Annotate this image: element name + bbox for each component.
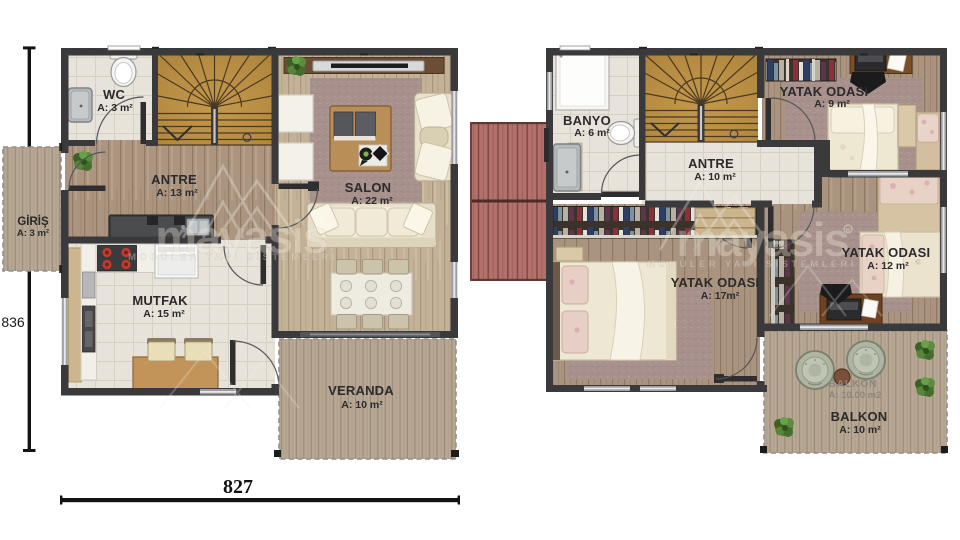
svg-text:A: 3 m²: A: 3 m²	[17, 228, 49, 239]
svg-text:A: 10 m²: A: 10 m²	[694, 171, 736, 183]
svg-text:R: R	[327, 218, 332, 224]
svg-text:ANTRE: ANTRE	[151, 172, 197, 187]
svg-text:A: 17m²: A: 17m²	[701, 290, 740, 302]
svg-text:YATAK ODASI: YATAK ODASI	[842, 245, 931, 260]
svg-text:MODÜLER YAPI SİSTEMLERİ: MODÜLER YAPI SİSTEMLERİ	[647, 259, 857, 270]
svg-text:BALKON: BALKON	[831, 409, 888, 424]
svg-text:SALON: SALON	[345, 180, 392, 195]
svg-text:ANTRE: ANTRE	[688, 156, 734, 171]
svg-text:827: 827	[223, 476, 253, 498]
svg-text:VERANDA: VERANDA	[328, 383, 394, 398]
svg-text:R: R	[846, 229, 851, 235]
svg-text:MODÜLER YAPI SİSTEMLERİ: MODÜLER YAPI SİSTEMLERİ	[128, 252, 338, 263]
svg-text:A: 15 m²: A: 15 m²	[143, 308, 185, 320]
svg-text:A: 10.00 m2: A: 10.00 m2	[829, 390, 882, 401]
svg-text:WC: WC	[103, 87, 125, 102]
svg-text:A: 10 m²: A: 10 m²	[839, 424, 881, 436]
svg-text:A: 3 m²: A: 3 m²	[97, 102, 133, 114]
svg-text:BALKON: BALKON	[829, 379, 878, 390]
svg-text:YATAK ODASI: YATAK ODASI	[671, 275, 760, 290]
svg-text:MUTFAK: MUTFAK	[132, 293, 188, 308]
svg-text:A: 6 m²: A: 6 m²	[574, 127, 610, 139]
svg-text:A: 22 m²: A: 22 m²	[351, 195, 393, 207]
svg-text:A: 10 m²: A: 10 m²	[341, 399, 383, 411]
svg-text:YATAK ODASI: YATAK ODASI	[780, 84, 869, 99]
svg-text:GİRİŞ: GİRİŞ	[17, 215, 49, 228]
svg-text:A: 13 m²: A: 13 m²	[156, 187, 198, 199]
svg-text:836: 836	[1, 314, 25, 330]
svg-text:A: 12 m²: A: 12 m²	[867, 260, 909, 272]
svg-text:BANYO: BANYO	[563, 113, 611, 128]
svg-text:A: 9 m²: A: 9 m²	[814, 98, 850, 110]
